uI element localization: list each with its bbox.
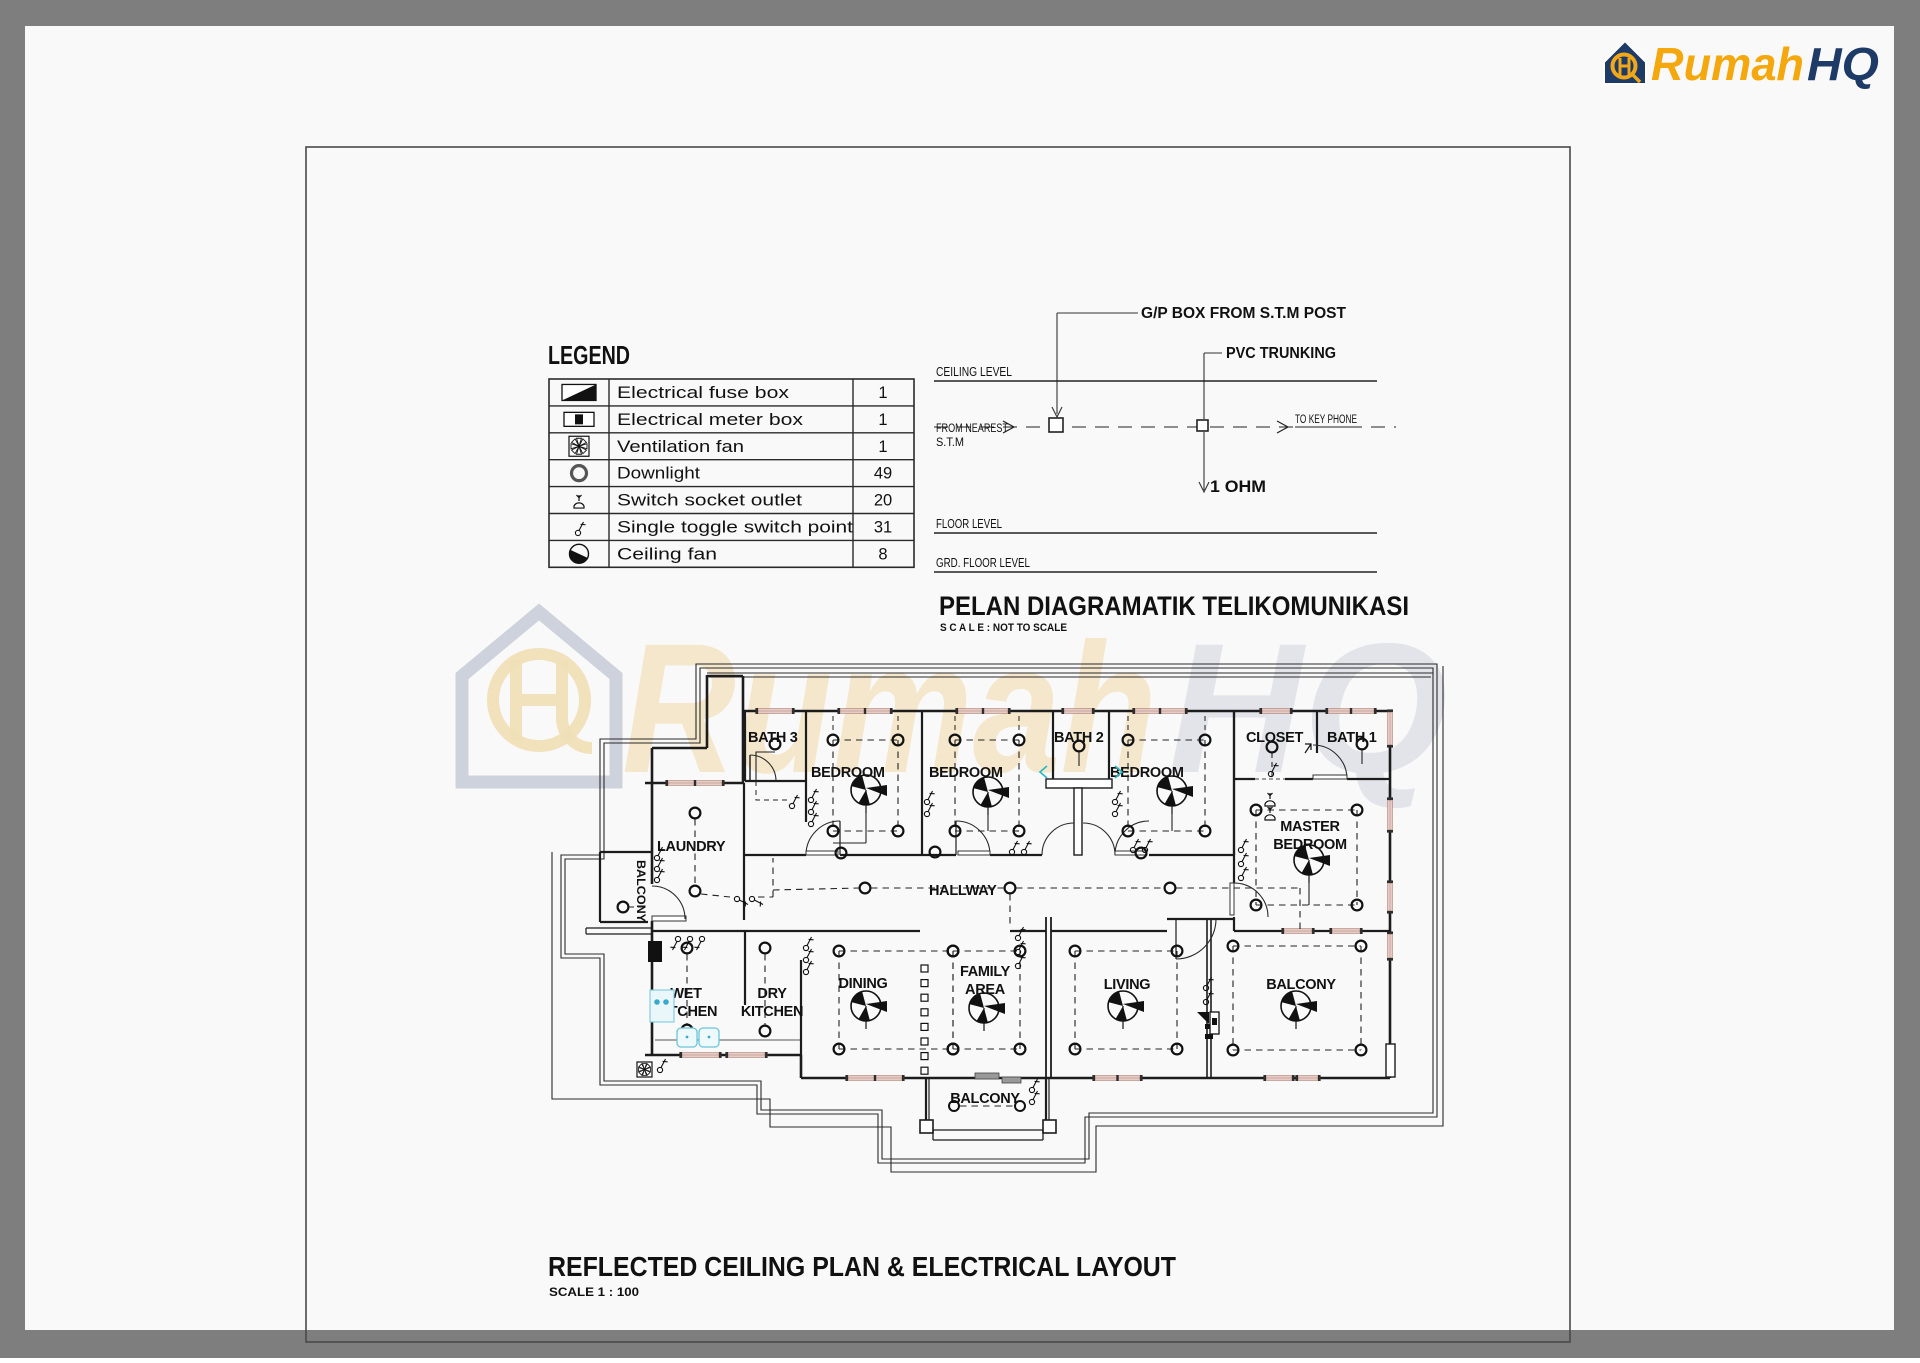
svg-text:LEGEND: LEGEND: [548, 340, 630, 370]
svg-text:PELAN DIAGRAMATIK TELIKOMUNIKA: PELAN DIAGRAMATIK TELIKOMUNIKASI: [939, 591, 1409, 621]
svg-text:MASTER: MASTER: [1280, 819, 1340, 835]
svg-text:LIVING: LIVING: [1104, 977, 1151, 993]
svg-text:Electrical fuse box: Electrical fuse box: [617, 384, 790, 402]
svg-text:Single toggle switch point: Single toggle switch point: [617, 518, 854, 536]
svg-text:Downlight: Downlight: [617, 465, 700, 483]
svg-text:DINING: DINING: [839, 976, 888, 992]
svg-text:SCALE 1 : 100: SCALE 1 : 100: [549, 1287, 639, 1299]
svg-text:Switch socket outlet: Switch socket outlet: [617, 492, 803, 510]
svg-text:CEILING LEVEL: CEILING LEVEL: [936, 365, 1012, 379]
svg-text:S.T.M: S.T.M: [936, 437, 964, 449]
svg-text:FLOOR LEVEL: FLOOR LEVEL: [936, 517, 1002, 531]
svg-text:GRD. FLOOR LEVEL: GRD. FLOOR LEVEL: [936, 556, 1030, 570]
svg-text:PVC TRUNKING: PVC TRUNKING: [1226, 345, 1336, 362]
svg-text:WET: WET: [670, 986, 702, 1002]
svg-text:AREA: AREA: [965, 982, 1006, 998]
svg-text:1 OHM: 1 OHM: [1210, 478, 1266, 496]
svg-text:HQ: HQ: [1807, 38, 1879, 90]
svg-text:KITCHEN: KITCHEN: [741, 1004, 803, 1020]
svg-text:1: 1: [878, 384, 887, 402]
svg-text:49: 49: [874, 465, 892, 483]
svg-text:FROM NEAREST: FROM NEAREST: [936, 423, 1008, 435]
svg-text:1: 1: [878, 438, 887, 456]
svg-text:Ceiling fan: Ceiling fan: [617, 545, 717, 563]
svg-text:TO KEY PHONE: TO KEY PHONE: [1295, 414, 1357, 426]
svg-text:BEDROOM: BEDROOM: [811, 765, 885, 781]
svg-text:REFLECTED CEILING PLAN & ELECT: REFLECTED CEILING PLAN & ELECTRICAL LAYO…: [548, 1251, 1176, 1282]
svg-text:1: 1: [878, 411, 887, 429]
svg-text:G/P BOX FROM S.T.M POST: G/P BOX FROM S.T.M POST: [1141, 305, 1347, 322]
svg-text:BALCONY: BALCONY: [634, 860, 648, 922]
svg-text:LAUNDRY: LAUNDRY: [657, 839, 726, 855]
svg-text:S C A L E : NOT TO SCALE: S C A L E : NOT TO SCALE: [940, 622, 1067, 634]
svg-text:BALCONY: BALCONY: [1266, 977, 1336, 993]
svg-text:BATH 2: BATH 2: [1054, 730, 1104, 746]
svg-text:FAMILY: FAMILY: [960, 964, 1011, 980]
svg-text:Rumah: Rumah: [1651, 38, 1804, 90]
svg-text:31: 31: [874, 518, 892, 536]
svg-text:Ventilation fan: Ventilation fan: [617, 438, 744, 456]
svg-text:DRY: DRY: [757, 986, 787, 1002]
svg-text:HQ: HQ: [1168, 606, 1448, 812]
svg-text:BALCONY: BALCONY: [950, 1091, 1020, 1107]
svg-text:20: 20: [874, 492, 892, 510]
svg-text:Electrical meter box: Electrical meter box: [617, 411, 804, 429]
svg-text:HALLWAY: HALLWAY: [929, 883, 997, 899]
svg-text:8: 8: [878, 545, 887, 563]
svg-text:BATH 1: BATH 1: [1327, 730, 1377, 746]
svg-text:BEDROOM: BEDROOM: [929, 765, 1003, 781]
